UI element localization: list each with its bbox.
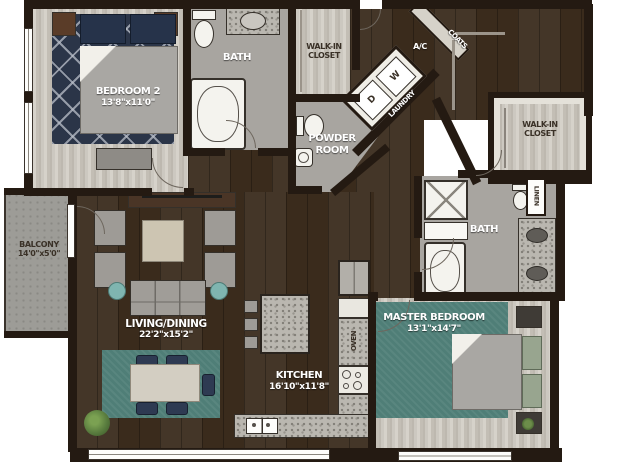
wall-powder-bottom xyxy=(288,186,322,194)
side-table xyxy=(210,282,228,300)
master-blanket-fold xyxy=(452,334,482,364)
living-name: LIVING/DINING xyxy=(102,318,230,330)
coats-partition xyxy=(455,32,505,35)
window-living xyxy=(88,449,330,460)
window-master xyxy=(398,451,512,461)
kitchen-dims: 16'10"x11'8" xyxy=(256,382,342,392)
coffee-table xyxy=(142,220,184,262)
floor-plan: D W xyxy=(0,0,639,473)
walkin-closet2-label: WALK-IN CLOSET xyxy=(506,120,574,138)
living-label: LIVING/DINING 22'2"x15'2" xyxy=(102,318,230,340)
nightstand xyxy=(516,306,542,328)
master-dims: 13'1"x14'7" xyxy=(372,324,496,334)
dining-table xyxy=(130,364,200,402)
bedroom2-label: BEDROOM 2 13'8"x11'0" xyxy=(68,86,188,108)
wall-master-right xyxy=(550,298,559,458)
wall-bath2-left-a xyxy=(414,176,422,238)
bath1-label: BATH xyxy=(207,52,267,64)
linen-text: LINEN xyxy=(532,179,539,213)
ac-text: A/C xyxy=(400,42,440,51)
wall-top-left xyxy=(24,0,360,9)
shower xyxy=(424,180,468,220)
powder-line2: ROOM xyxy=(300,145,364,157)
wall-closet1-powder xyxy=(288,94,360,102)
window-bedroom2-b xyxy=(24,102,33,174)
bed-pillow xyxy=(522,336,542,370)
sink-drain xyxy=(266,423,270,427)
entry-door-gap xyxy=(360,0,382,9)
powder-line1: POWDER xyxy=(300,133,364,145)
oven-text: OVEN xyxy=(350,317,358,365)
burner xyxy=(343,383,349,389)
wall-bath2-right xyxy=(556,170,565,300)
bed2-blanket-fold xyxy=(80,46,116,82)
bed-pillow xyxy=(522,374,542,408)
window-bedroom2-a xyxy=(24,28,33,92)
powder-label: POWDER ROOM xyxy=(300,133,364,156)
bath2-name: BATH xyxy=(456,224,512,236)
wall-stub xyxy=(184,188,194,196)
burner xyxy=(355,372,361,378)
closet2-line1: WALK-IN xyxy=(506,120,574,129)
closet2-line2: CLOSET xyxy=(506,129,574,138)
kitchen-island xyxy=(260,294,310,354)
linen-label: LINEN xyxy=(532,179,539,213)
bedroom2-dims: 13'8"x11'0" xyxy=(68,98,188,108)
ac-label: A/C xyxy=(400,42,440,51)
closet1-line2: CLOSET xyxy=(294,51,354,60)
balcony-floor xyxy=(4,190,74,336)
bar-stool xyxy=(244,336,258,349)
kitchen-name: KITCHEN xyxy=(256,370,342,382)
master-label: MASTER BEDROOM 13'1"x14'7" xyxy=(372,312,496,334)
wall-powder-left xyxy=(288,100,296,192)
refrigerator xyxy=(338,260,370,296)
toilet-tank xyxy=(192,10,216,20)
wall-right-top xyxy=(584,4,593,116)
kitchen-label: KITCHEN 16'10"x11'8" xyxy=(256,370,342,392)
bath1-sink xyxy=(240,12,266,30)
nightstand xyxy=(52,12,76,36)
dining-chair xyxy=(202,374,215,396)
wall-balcony-bottom xyxy=(4,331,76,338)
bed-pillow xyxy=(130,14,176,44)
ac-partition xyxy=(452,40,455,110)
wall-bedroom2-bath xyxy=(183,4,191,156)
dresser xyxy=(96,148,152,170)
living-dims: 22'2"x15'2" xyxy=(102,330,230,340)
toilet-bowl xyxy=(194,20,214,48)
balcony-label: BALCONY 14'0"x5'0" xyxy=(8,240,70,258)
bar-stool xyxy=(244,300,258,313)
tv xyxy=(142,195,222,198)
dining-chair xyxy=(136,402,158,415)
bed-pillow xyxy=(80,14,126,44)
kitchen-counter-white xyxy=(338,298,370,318)
armchair xyxy=(204,210,236,246)
vanity-sink xyxy=(526,228,548,243)
wall-bath1-bottom-a xyxy=(183,148,225,156)
plant xyxy=(84,410,110,436)
kitchen-sink xyxy=(246,418,278,434)
sink-drain xyxy=(252,423,256,427)
sofa xyxy=(130,280,206,316)
wall-bath2-left-b xyxy=(414,272,422,294)
walkin-closet1-label: WALK-IN CLOSET xyxy=(294,42,354,60)
plant-small xyxy=(522,418,534,430)
wall-bath2-bottom xyxy=(414,292,565,301)
burner xyxy=(342,370,351,379)
balcony-name: BALCONY xyxy=(8,240,70,249)
wall-top-right xyxy=(382,0,592,9)
bath1-name: BATH xyxy=(207,52,267,64)
burner xyxy=(353,381,362,390)
bar-stool xyxy=(244,318,258,331)
closet1-line1: WALK-IN xyxy=(294,42,354,51)
balcony-dims: 14'0"x5'0" xyxy=(8,249,70,258)
wall-balcony-top xyxy=(4,188,76,195)
oven-label: OVEN xyxy=(350,317,358,365)
vanity-sink xyxy=(526,266,548,281)
master-name: MASTER BEDROOM xyxy=(372,312,496,324)
side-table xyxy=(108,282,126,300)
bath2-label: BATH xyxy=(456,224,512,236)
bedroom2-name: BEDROOM 2 xyxy=(68,86,188,98)
dining-chair xyxy=(166,402,188,415)
